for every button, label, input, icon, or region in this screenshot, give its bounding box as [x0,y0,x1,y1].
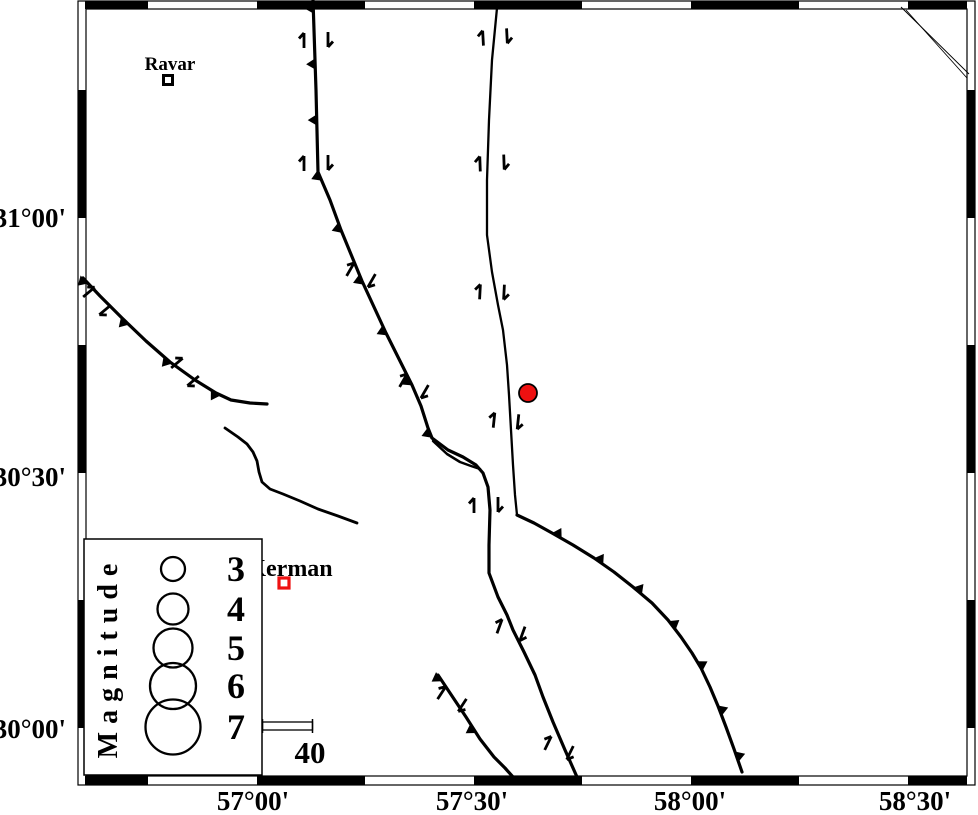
slip-arrow-left [488,412,495,427]
strike-slip-arrow-pair [475,154,510,171]
slip-arrow-right [520,627,530,643]
slip-arrow-left [342,260,354,275]
frame-tick-segment [967,600,975,728]
slip-arrow-left [475,284,481,299]
axis-label-longitude: 57°00' [217,786,289,815]
legend-magnitude-label: 5 [227,628,245,668]
fault-line-central-fault-south-segment [432,438,577,777]
frame-tick-segment [691,1,799,9]
slip-arrow-right [567,746,578,762]
fault-line-north-trending-thrust-west [313,0,432,438]
seismicity-map: 31°00'30°30'30°00'57°00'57°30'58°00'58°3… [0,0,978,815]
slip-arrow-right [328,155,333,170]
frame-tick-segment [474,776,582,785]
axis-label-latitude: 30°30' [0,462,66,492]
axis-label-latitude: 31°00' [0,203,66,233]
strike-slip-arrow-pair [475,283,510,301]
axis-label-latitude: 30°00' [0,714,66,744]
magnitude-legend: Magnitude34567 [84,539,262,775]
slip-arrow-left [433,684,445,699]
slip-arrow-left [469,498,474,513]
slip-arrow-right [368,274,380,289]
slip-arrow-left [299,156,304,171]
strike-slip-arrow-pair [469,497,503,513]
frame-tick-segment [78,345,86,473]
frame-tick-segment [908,776,967,785]
scale-bar-rect [263,722,313,730]
slip-arrow-right [498,497,503,512]
frame-tick-segment [85,776,148,785]
frame-tick-segment [78,90,86,218]
fault-line-northwest-thrust [83,278,267,404]
strike-slip-arrow-pair [299,155,333,171]
legend-magnitude-label: 6 [227,666,245,706]
fault-tooth [306,58,315,69]
axis-label-longitude: 58°30' [879,786,951,815]
town-label-ravar: Ravar [145,54,196,75]
corner-neatline [906,10,967,78]
fault-tooth [308,114,317,125]
slip-arrow-right [517,414,524,429]
frame-tick-segment [908,1,967,9]
fault-line-southwest-short-thrust [438,675,513,777]
frame-tick-segment [474,1,582,9]
slip-arrow-right [507,28,513,43]
earthquake-epicenter-marker [519,384,537,402]
slip-arrow-left [475,156,481,171]
legend-magnitude-label: 7 [227,707,245,747]
legend-title: Magnitude [93,556,124,759]
slip-arrow-right [328,32,333,47]
legend-magnitude-label: 3 [227,549,245,589]
map-canvas: 31°00'30°30'30°00'57°00'57°30'58°00'58°3… [0,0,978,815]
corner-neatline [901,7,969,74]
strike-slip-arrow-pair [433,683,470,715]
slip-arrow-right [504,285,510,300]
fault-line-east-strike-slip-fault [487,8,517,515]
frame-tick-segment [257,776,365,785]
fault-line-southeast-thrust-arc [517,515,742,772]
slip-arrow-left [299,33,304,48]
fault-line-west-curved-lineament [225,428,357,523]
town-marker-kerman [279,578,289,588]
map-scale-bar: 40 [263,719,326,770]
slip-arrow-left [540,734,551,750]
strike-slip-arrow-pair [492,617,529,644]
slip-arrow-left [478,31,484,46]
axis-label-longitude: 57°30' [436,786,508,815]
frame-tick-segment [967,345,975,473]
slip-arrow-right [504,154,510,169]
frame-tick-segment [691,776,799,785]
axis-label-longitude: 58°00' [654,786,726,815]
slip-arrow-right [421,385,433,400]
town-marker-ravar [164,76,173,85]
frame-tick-segment [967,90,975,218]
legend-magnitude-label: 4 [227,589,245,629]
strike-slip-arrow-pair [488,411,523,430]
frame-tick-segment [85,1,148,9]
slip-arrow-left [492,618,502,634]
scale-bar-label: 40 [295,735,326,770]
